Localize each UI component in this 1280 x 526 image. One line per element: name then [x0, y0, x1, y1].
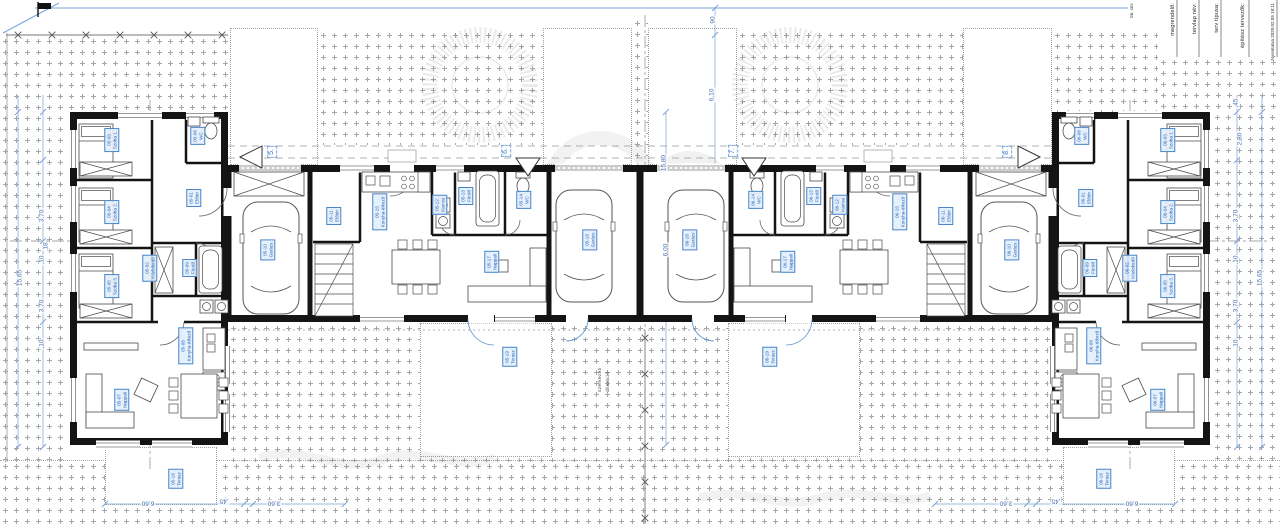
- dimension-text: 2,80: [1237, 132, 1244, 147]
- dimension-text: 90: [710, 15, 717, 24]
- dimension-text: ,10: [39, 254, 46, 265]
- room-name: Előtér: [946, 210, 952, 222]
- dimension-text: ,45: [218, 498, 229, 505]
- room-label: 05-10Garázs: [260, 240, 275, 261]
- room-label: 05-14WC: [516, 191, 531, 209]
- room-name: Garázs: [1012, 243, 1018, 258]
- dimension-text: 6,10: [709, 88, 716, 103]
- title-block: tm. cm:: [1125, 0, 1280, 58]
- room-name: WC: [524, 196, 530, 204]
- room-name: Szoba 2.: [112, 203, 118, 221]
- dimension-text: ,45: [1050, 498, 1061, 505]
- room-label: 05-01Előtér: [186, 189, 201, 207]
- room-label: 06-11Előtér: [938, 207, 953, 225]
- floor-plan-sheet: 05-01Előtér05-02Közlekedő05-03Szoba 1.05…: [0, 0, 1280, 526]
- room-name: Terasz: [510, 350, 516, 364]
- title-block-field: tervlap név:: [1192, 3, 1198, 34]
- room-name: Kamra: [840, 198, 846, 212]
- room-name: WC: [1082, 132, 1088, 140]
- room-label: 06-07Nappali: [1150, 389, 1165, 411]
- section-marker-label: 7.: [728, 145, 738, 157]
- room-name: Szoba 2.: [1168, 203, 1174, 221]
- room-name: Fürdő: [814, 190, 820, 202]
- room-name: Nappali: [788, 254, 794, 270]
- room-label: 05-19Terasz: [502, 347, 517, 367]
- room-name: Nappali: [122, 392, 128, 408]
- room-label: 05-02Közlekedő: [142, 254, 157, 281]
- room-label: 06-18Garázs: [682, 230, 697, 251]
- room-label: 05-15Konyha-étkező: [372, 194, 387, 231]
- dimension-text: 3,70: [39, 299, 46, 314]
- room-name: Szoba 3.: [1168, 277, 1174, 295]
- room-label: 05-09Fürdő: [182, 259, 197, 277]
- title-block-field: terv típusa:: [1214, 3, 1220, 33]
- room-name: Szoba 3.: [112, 277, 118, 295]
- dimension-text: 3,70: [1233, 209, 1240, 224]
- room-label: 05-08Konyha-étkező: [178, 328, 193, 365]
- dimension-text: 15,65: [1257, 269, 1264, 287]
- room-name: Fürdő: [190, 262, 196, 274]
- title-block-side-note: tm. cm:: [1129, 3, 1134, 18]
- room-name: Terasz: [770, 350, 776, 364]
- room-name: Konyha-étkező: [900, 197, 906, 228]
- title-block-field: építész tervezők:: [1240, 3, 1246, 48]
- room-name: Fürdő: [466, 190, 472, 202]
- room-label: 06-02Közlekedő: [1122, 254, 1137, 281]
- room-name: WC: [756, 196, 762, 204]
- room-label: 05-06WC: [190, 127, 205, 145]
- plan-note: dilatáció: [606, 332, 611, 392]
- room-label: 06-14WC: [748, 191, 763, 209]
- room-label: 06-16Terasz: [1096, 469, 1111, 489]
- room-name: Garázs: [690, 233, 696, 248]
- plan-note: szerkezeti: [598, 332, 603, 392]
- dimension-text: ,10: [1233, 338, 1240, 349]
- room-label: 05-05Szoba 3.: [104, 274, 119, 298]
- room-label: 06-06WC: [1074, 127, 1089, 145]
- room-label: 06-17Nappali: [780, 251, 795, 273]
- room-name: Terasz: [176, 472, 182, 486]
- dimension-text: 3,60: [267, 500, 282, 507]
- dimension-text: 15,65: [17, 269, 24, 287]
- room-name: Nappali: [1158, 392, 1164, 408]
- room-name: Garázs: [590, 233, 596, 248]
- dimension-text: 3,70: [39, 209, 46, 224]
- room-label: 06-09Fürdő: [1082, 259, 1097, 277]
- room-name: Terasz: [1104, 472, 1110, 486]
- print-note: Nyomtatva 2020.02.09 18:11: [1270, 3, 1275, 60]
- room-label: 05-13Fürdő: [458, 187, 473, 205]
- dimension-text: ,10: [1233, 254, 1240, 265]
- room-name: Előtér: [334, 210, 340, 222]
- room-name: WC: [198, 132, 204, 140]
- room-label: 05-17Nappali: [484, 251, 499, 273]
- dimension-text: ,10: [39, 338, 46, 349]
- room-name: Konyha-étkező: [186, 331, 192, 362]
- dimension-text: ,45: [1233, 97, 1240, 108]
- room-label: 05-04Szoba 2.: [104, 200, 119, 224]
- room-label: 06-10Garázs: [1004, 240, 1019, 261]
- room-label: 06-01Előtér: [1078, 189, 1093, 207]
- dimension-text: 3,70: [1233, 299, 1240, 314]
- room-label: 06-12Kamra: [832, 195, 847, 215]
- room-label: 05-12Kamra: [432, 195, 447, 215]
- room-name: Fürdő: [1090, 262, 1096, 274]
- room-label: 05-11Előtér: [326, 207, 341, 225]
- room-label: 05-03Szoba 1.: [104, 128, 119, 152]
- room-label: 06-19Terasz: [762, 347, 777, 367]
- room-label: 05-18Garázs: [582, 230, 597, 251]
- room-label: 06-04Szoba 2.: [1160, 200, 1175, 224]
- room-name: Garázs: [268, 243, 274, 258]
- room-name: Konyha-étkező: [380, 197, 386, 228]
- room-label: 06-03Szoba 1.: [1160, 128, 1175, 152]
- annotation-layer: 05-01Előtér05-02Közlekedő05-03Szoba 1.05…: [0, 0, 1280, 526]
- title-block-field: megrendelő:: [1170, 3, 1176, 36]
- dimension-text: 15,80: [661, 154, 668, 172]
- room-label: 06-08Konyha-étkező: [1086, 328, 1101, 365]
- room-name: Közlekedő: [1130, 257, 1136, 278]
- dimension-text: 18: [43, 241, 50, 250]
- room-name: Előtér: [194, 192, 200, 204]
- room-label: 05-16Terasz: [168, 469, 183, 489]
- room-name: Kamra: [440, 198, 446, 212]
- section-marker-label: 6.: [501, 145, 511, 157]
- room-label: 06-05Szoba 3.: [1160, 274, 1175, 298]
- room-name: Közlekedő: [150, 257, 156, 278]
- room-label: 06-15Konyha-étkező: [892, 194, 907, 231]
- room-name: Szoba 1.: [112, 131, 118, 149]
- room-name: Szoba 1.: [1168, 131, 1174, 149]
- dimension-text: 3,60: [999, 500, 1014, 507]
- room-label: 05-07Nappali: [114, 389, 129, 411]
- room-name: Konyha-étkező: [1094, 331, 1100, 362]
- dimension-text: 6,60: [1125, 500, 1140, 507]
- room-name: Nappali: [492, 254, 498, 270]
- dimension-text: 6,60: [141, 500, 156, 507]
- dimension-text: 6,00: [663, 243, 670, 258]
- room-name: Előtér: [1086, 192, 1092, 204]
- section-marker-label: 8.: [1002, 146, 1012, 158]
- room-label: 06-13Fürdő: [806, 187, 821, 205]
- section-marker-label: 5.: [267, 146, 277, 158]
